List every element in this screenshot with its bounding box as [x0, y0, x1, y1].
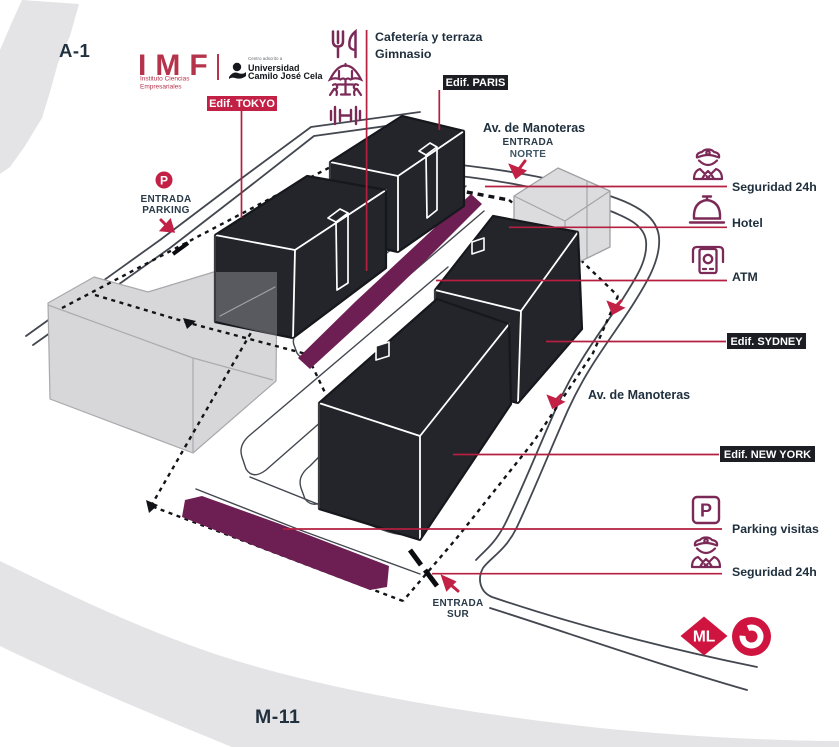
svg-text:M-11: M-11: [255, 706, 300, 728]
svg-text:P: P: [700, 501, 712, 521]
svg-text:ENTRADA: ENTRADA: [141, 194, 192, 205]
svg-text:Edif. NEW YORK: Edif. NEW YORK: [724, 449, 811, 461]
svg-text:Seguridad 24h: Seguridad 24h: [732, 180, 817, 194]
svg-text:Edif. SYDNEY: Edif. SYDNEY: [730, 336, 803, 348]
svg-text:Parking visitas: Parking visitas: [732, 522, 819, 536]
svg-text:ML: ML: [693, 629, 715, 646]
svg-text:NORTE: NORTE: [510, 149, 547, 160]
svg-text:ENTRADA: ENTRADA: [503, 137, 554, 148]
svg-text:PARKING: PARKING: [142, 205, 189, 216]
svg-text:Edif. PARIS: Edif. PARIS: [446, 77, 506, 89]
svg-text:Cafetería y terraza: Cafetería y terraza: [375, 30, 483, 44]
svg-text:Gimnasio: Gimnasio: [375, 47, 432, 61]
svg-text:SUR: SUR: [447, 609, 469, 620]
svg-text:Instituto Ciencias: Instituto Ciencias: [140, 76, 190, 83]
svg-text:Av. de Manoteras: Av. de Manoteras: [483, 121, 585, 135]
svg-text:Empresariales: Empresariales: [140, 84, 182, 91]
svg-text:Av. de Manoteras: Av. de Manoteras: [588, 388, 690, 402]
svg-text:Edif. TOKYO: Edif. TOKYO: [209, 98, 275, 110]
svg-text:ENTRADA: ENTRADA: [433, 598, 484, 609]
svg-text:Hotel: Hotel: [732, 216, 763, 230]
svg-text:Camilo José Cela: Camilo José Cela: [248, 71, 324, 81]
svg-text:Seguridad 24h: Seguridad 24h: [732, 565, 817, 579]
svg-text:ATM: ATM: [732, 270, 758, 284]
svg-text:P: P: [160, 174, 168, 188]
svg-text:A-1: A-1: [59, 40, 90, 61]
svg-text:Centro adscrito a: Centro adscrito a: [248, 56, 283, 61]
